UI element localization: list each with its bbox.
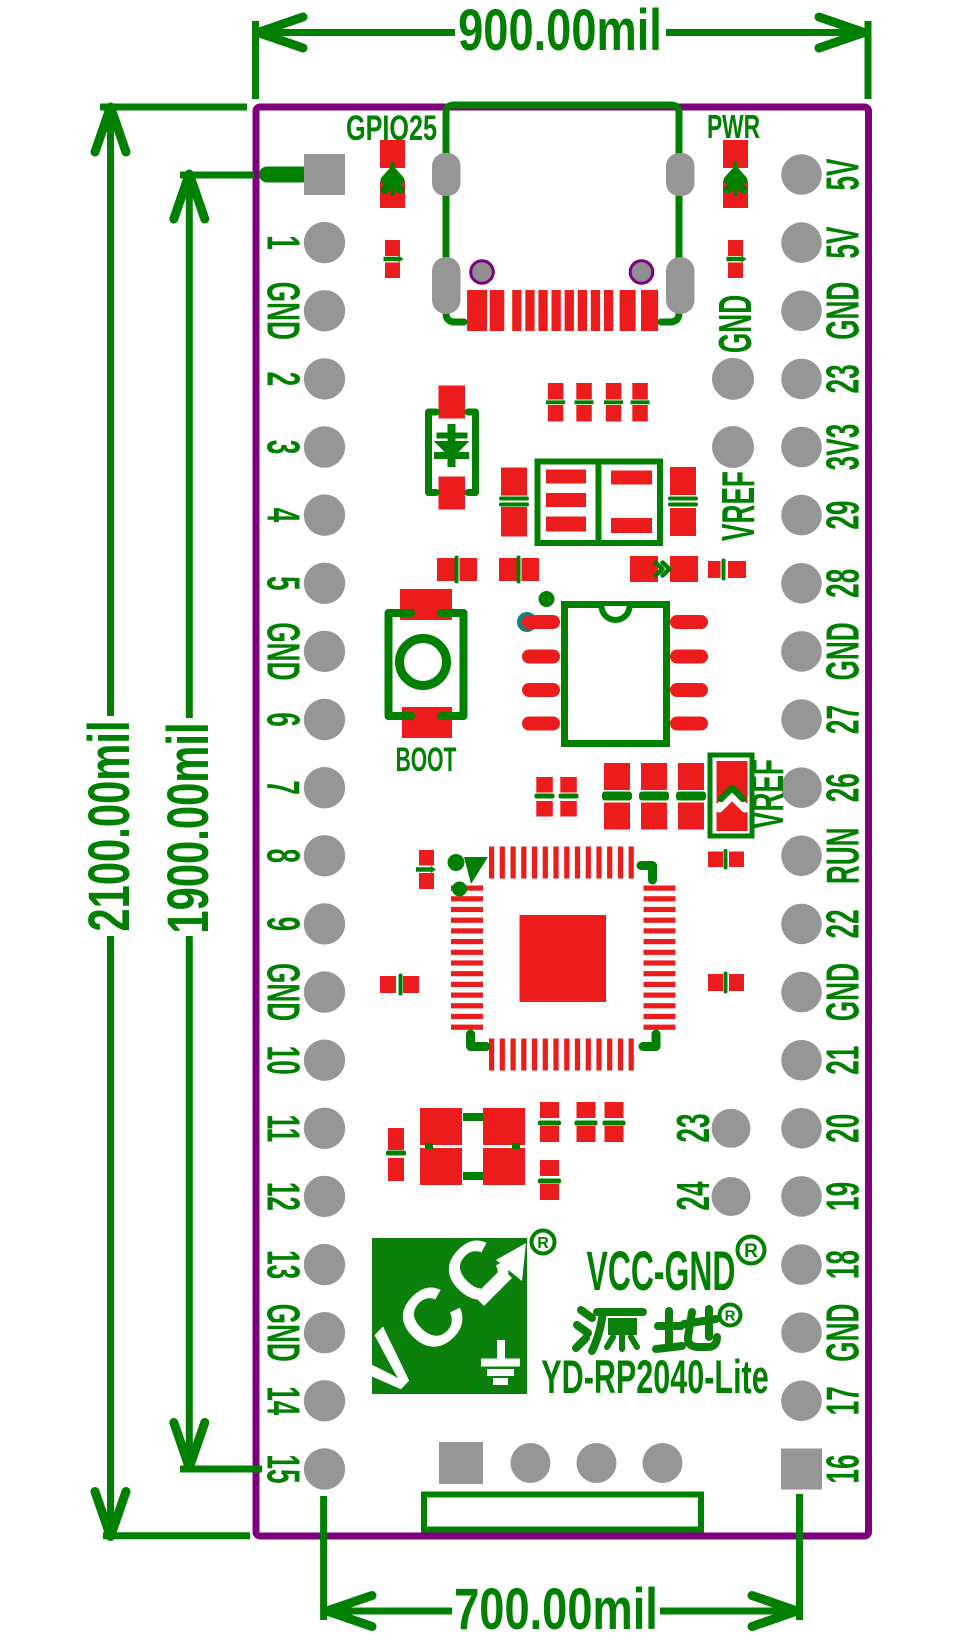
svg-text:RUN: RUN (817, 827, 869, 884)
svg-text:7: 7 (258, 780, 310, 795)
svg-text:29: 29 (817, 501, 869, 530)
svg-text:23: 23 (817, 364, 869, 393)
svg-text:6: 6 (258, 712, 310, 727)
svg-text:27: 27 (817, 705, 869, 734)
svg-text:GND: GND (709, 295, 761, 353)
svg-text:22: 22 (817, 909, 869, 938)
svg-text:24: 24 (667, 1181, 719, 1210)
svg-text:PWR: PWR (707, 109, 760, 146)
svg-text:1900.00mil: 1900.00mil (155, 722, 220, 933)
svg-text:9: 9 (258, 917, 310, 932)
svg-text:3V3: 3V3 (817, 424, 869, 471)
svg-text:BOOT: BOOT (396, 740, 457, 778)
svg-text:19: 19 (817, 1182, 869, 1211)
svg-text:VREF: VREF (741, 759, 793, 829)
svg-text:12: 12 (258, 1182, 310, 1211)
svg-text:18: 18 (817, 1250, 869, 1279)
svg-text:21: 21 (817, 1046, 869, 1075)
svg-text:5V: 5V (817, 227, 869, 259)
svg-text:2100.00mil: 2100.00mil (76, 720, 141, 931)
svg-text:GND: GND (817, 1304, 869, 1362)
svg-text:YD-RP2040-Lite: YD-RP2040-Lite (541, 1351, 768, 1403)
svg-text:R: R (744, 1241, 758, 1262)
svg-text:GND: GND (817, 282, 869, 340)
svg-text:GND: GND (258, 622, 310, 680)
svg-text:GND: GND (817, 622, 869, 680)
svg-text:2: 2 (258, 372, 310, 387)
svg-text:GND: GND (258, 1304, 310, 1362)
svg-text:GND: GND (258, 963, 310, 1021)
svg-text:GPIO25: GPIO25 (346, 109, 437, 148)
svg-text:VREF: VREF (712, 471, 764, 541)
svg-text:R: R (725, 1307, 736, 1324)
svg-text:4: 4 (258, 508, 310, 523)
svg-text:GND: GND (258, 282, 310, 340)
svg-text:VCC-GND: VCC-GND (587, 1240, 736, 1303)
svg-text:GND: GND (817, 963, 869, 1021)
svg-text:5V: 5V (817, 158, 869, 190)
svg-text:900.00mil: 900.00mil (458, 0, 662, 63)
svg-text:15: 15 (258, 1454, 310, 1483)
svg-text:8: 8 (258, 849, 310, 864)
svg-text:11: 11 (258, 1114, 310, 1142)
svg-text:3: 3 (258, 440, 310, 455)
svg-text:R: R (537, 1235, 549, 1252)
svg-text:5: 5 (258, 576, 310, 591)
svg-text:14: 14 (258, 1386, 310, 1415)
svg-text:28: 28 (817, 569, 869, 598)
svg-text:13: 13 (258, 1250, 310, 1279)
svg-text:700.00mil: 700.00mil (454, 1578, 658, 1643)
svg-text:16: 16 (817, 1454, 869, 1483)
svg-text:26: 26 (817, 773, 869, 802)
svg-text:23: 23 (667, 1113, 719, 1142)
svg-text:1: 1 (258, 235, 310, 250)
svg-text:10: 10 (258, 1046, 310, 1075)
svg-text:17: 17 (817, 1386, 869, 1415)
svg-text:20: 20 (817, 1114, 869, 1143)
